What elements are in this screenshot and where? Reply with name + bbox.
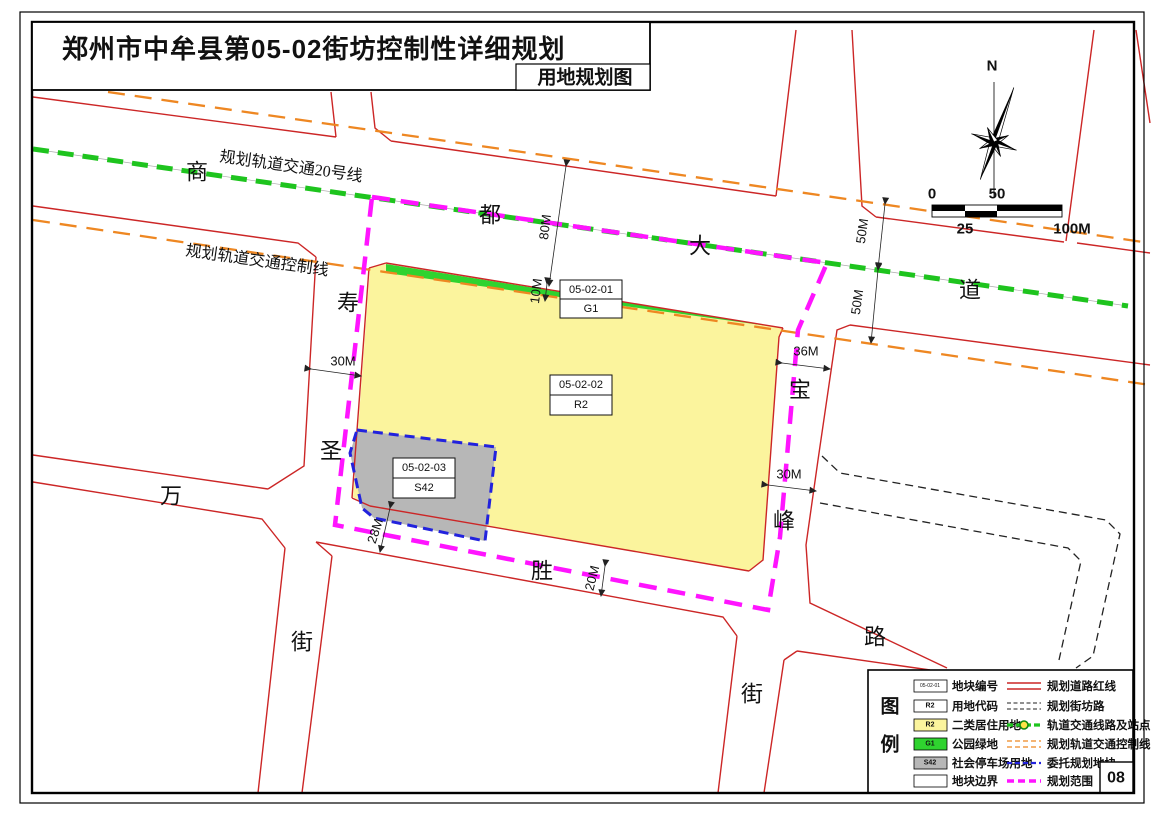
legend-title-bottom: 例 [880,733,899,756]
rail-control-label: 规划轨道交通控制线 [185,242,330,280]
road-char-du: 都 [479,203,501,228]
parcel-g1-id: 05-02-01 [569,284,613,296]
map-canvas: 80M 10M 50M 50M 36M 30M 30M 28M 20M 规划轨道… [0,0,1151,814]
legend-swatch-parking: S42 [924,760,937,767]
legend-label-greenspace: 公园绿地 [952,737,998,751]
scale-25: 25 [957,221,974,238]
road-char-shou: 寿 [337,291,359,316]
page-title: 郑州市中牟县第05-02街坊控制性详细规划 [62,34,566,64]
scale-100m: 100M [1053,221,1091,238]
north-compass: N [971,58,1016,199]
title-block: 郑州市中牟县第05-02街坊控制性详细规划 用地规划图 [32,22,650,90]
road-char-lu: 路 [864,625,886,650]
dim-36m: 36M [793,344,818,359]
legend-label-planning-scope: 规划范围 [1047,774,1093,788]
dim-10m: 10M [527,278,545,305]
parcel-s42-id: 05-02-03 [402,462,446,474]
legend-title-top: 图 [880,696,899,718]
dim-30m-left: 30M [330,354,355,369]
map-subtitle: 用地规划图 [537,66,632,89]
parcel-label-g1: 05-02-01 G1 [560,280,622,318]
page-number: 08 [1107,770,1125,787]
legend: 图 例 05-02-01 地块编号 R2 用地代码 R2 二类居住用地 G1 公… [868,670,1151,793]
road-name-shousheng-jie: 寿 圣 街 [291,291,359,655]
parcel-r2-code: R2 [574,399,588,411]
scale-50: 50 [989,186,1006,203]
road-char-feng: 峰 [773,509,795,534]
road-char-dao: 道 [959,278,981,303]
dim-50m-upper: 50M [853,217,871,244]
legend-label-landcode: 用地代码 [951,699,998,713]
legend-label-road-redline: 规划道路红线 [1047,679,1116,693]
road-char-wan: 万 [160,484,182,509]
dim-50m-lower: 50M [848,288,866,315]
road-char-sheng-sacred: 圣 [320,439,342,464]
parcel-g1-code: G1 [584,303,599,315]
scale-bar: 0 50 25 100M [928,186,1091,238]
legend-label-parcel-id: 地块编号 [952,679,998,693]
parcel-label-s42: 05-02-03 S42 [393,458,455,498]
dim-30m-right: 30M [776,467,801,482]
legend-label-parking: 社会停车场用地 [951,756,1033,770]
road-char-jie-right: 街 [741,682,763,707]
legend-swatch-landcode: R2 [926,703,935,710]
planning-map-page: 80M 10M 50M 50M 36M 30M 30M 28M 20M 规划轨道… [0,0,1151,814]
legend-swatch-parcel-id: 05-02-01 [920,683,940,689]
road-char-sheng-victory: 胜 [531,559,553,584]
page-number-box: 08 [1100,762,1133,793]
legend-label-rail-control: 规划轨道交通控制线 [1047,737,1151,751]
dim-80m: 80M [536,214,554,241]
legend-label-block-road: 规划街坊路 [1047,699,1105,713]
legend-swatch-greenspace: G1 [925,741,934,748]
legend-label-rail-station: 轨道交通线路及站点 [1047,718,1151,732]
north-label: N [987,58,998,75]
road-char-jie-left: 街 [291,630,313,655]
road-char-da: 大 [689,234,711,259]
parcel-label-r2: 05-02-02 R2 [550,375,612,415]
scale-0: 0 [928,186,936,203]
road-char-shang: 商 [186,160,208,185]
road-char-bao: 宝 [789,378,811,403]
dim-20m: 20M [582,564,603,592]
parcel-s42-code: S42 [414,482,434,494]
legend-label-parcel-boundary: 地块边界 [952,774,998,788]
parcel-r2-id: 05-02-02 [559,379,603,391]
legend-swatch-residential: R2 [926,722,935,729]
